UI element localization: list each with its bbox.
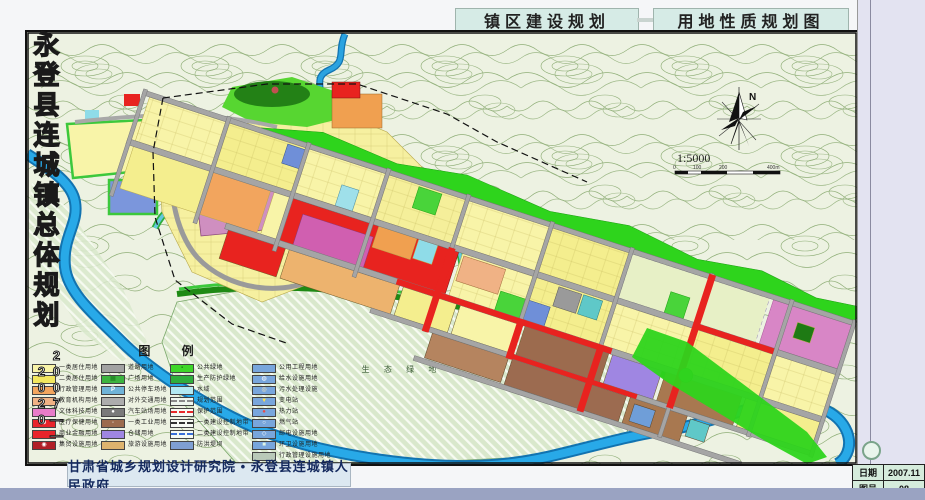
legend-item-label: 对外交通用地 <box>128 398 167 405</box>
legend-swatch: ○ <box>252 419 276 428</box>
legend-item: ◍给水设施用地 <box>252 375 331 383</box>
legend-item: 二类建设控制地带 <box>170 430 249 438</box>
forest-patch <box>234 81 310 107</box>
legend-swatch: ◦ <box>101 419 125 428</box>
svg-text:0: 0 <box>673 165 676 171</box>
legend-swatch: ● <box>101 408 125 417</box>
legend-item: P公共停车场地 <box>101 386 167 394</box>
sidebar-divider <box>870 0 871 488</box>
legend-swatch <box>170 408 194 417</box>
legend-item-label: 道路用地 <box>128 365 154 372</box>
bottom-strip <box>0 488 925 500</box>
legend-item-label: 汽车站场用地 <box>128 409 167 416</box>
legend-item: ●热力站 <box>252 408 331 416</box>
legend-swatch <box>170 441 194 450</box>
legend-swatch <box>101 441 125 450</box>
legend-item: ▼变电站 <box>252 397 331 405</box>
legend-item-label: 燃气站 <box>279 420 299 427</box>
legend-item-label: 保护范围 <box>197 409 223 416</box>
legend-item-label: 仓储用地 <box>128 431 154 438</box>
legend-item-label: 医疗保健用地 <box>59 420 98 427</box>
svg-text:100: 100 <box>693 165 702 171</box>
legend-item: ▦广场用地 <box>101 375 167 383</box>
legend-swatch: ◎ <box>252 386 276 395</box>
legend-swatch <box>170 375 194 384</box>
legend-item: ●汽车站场用地 <box>101 408 167 416</box>
legend-swatch: ▦ <box>101 375 125 384</box>
legend-swatch: ▪ <box>170 364 194 373</box>
legend-item: 公用工程用地 <box>252 364 331 372</box>
legend-item-label: 公用工程用地 <box>279 365 318 372</box>
legend-swatch <box>101 430 125 439</box>
legend-item-label: 生产防护绿地 <box>197 376 236 383</box>
svg-text:200: 200 <box>719 165 728 171</box>
legend-item-label: 给水设施用地 <box>279 376 318 383</box>
legend-item-label: 广场用地 <box>128 376 154 383</box>
legend-item: 一类建设控制地带 <box>170 419 249 427</box>
legend-item: ◇邮电设施用地 <box>252 430 331 438</box>
legend-columns: 一类居住用地二类居住用地行政管理用地教育机构用地文体科技用地⊕医疗保健用地商业金… <box>32 364 300 460</box>
legend-item-label: 一类居住用地 <box>59 365 98 372</box>
legend-swatch <box>170 430 194 439</box>
sidebar <box>857 0 925 488</box>
legend-item: 生产防护绿地 <box>170 375 249 383</box>
title-tab-landuse-plan: 用地性质规划图 <box>653 8 849 32</box>
legend-item-label: 教育机构用地 <box>59 398 98 405</box>
legend-swatch: ◍ <box>252 375 276 384</box>
legend-item: ◎污水处理设施 <box>252 386 331 394</box>
legend-item-label: 公共绿地 <box>197 365 223 372</box>
tab-connector-line <box>637 18 653 22</box>
legend-item-label: 防洪堤坝 <box>197 442 223 449</box>
legend-item: 规划范围 <box>170 397 249 405</box>
legend-swatch: P <box>101 386 125 395</box>
legend-item: 对外交通用地 <box>101 397 167 405</box>
legend-item-label: 一类建设控制地带 <box>197 420 249 427</box>
scale-ratio: 1:5000 <box>677 151 710 165</box>
north-label: N <box>749 92 756 103</box>
legend-item: 道路用地 <box>101 364 167 372</box>
legend-swatch: ◇ <box>252 430 276 439</box>
legend-item-label: 邮电设施用地 <box>279 431 318 438</box>
legend-item: 水域 <box>170 386 249 394</box>
date-value: 2007.11 <box>884 465 925 481</box>
stamp-circle-icon <box>862 441 881 460</box>
legend-item: 旅游设施用地 <box>101 441 167 449</box>
legend-item: ○燃气站 <box>252 419 331 427</box>
table-row: 日期 2007.11 <box>853 465 925 481</box>
legend-item: ▪公共绿地 <box>170 364 249 372</box>
legend-swatch <box>170 397 194 406</box>
legend-item-label: 一类工业用地 <box>128 420 167 427</box>
legend-title: 图 例 <box>32 342 300 359</box>
legend-item: 仓储用地 <box>101 430 167 438</box>
legend-item-label: 水域 <box>197 387 210 394</box>
legend-swatch <box>252 364 276 373</box>
legend-item-label: 文体科技用地 <box>59 409 98 416</box>
legend-item-label: 污水处理设施 <box>279 387 318 394</box>
date-label: 日期 <box>853 465 884 481</box>
legend-item-label: 规划范围 <box>197 398 223 405</box>
legend-item-label: 行政管理用地 <box>59 387 98 394</box>
legend-swatch: ● <box>252 408 276 417</box>
legend-swatch <box>101 397 125 406</box>
legend-item-label: 二类建设控制地带 <box>197 431 249 438</box>
legend-item-label: 热力站 <box>279 409 299 416</box>
svg-text:400m: 400m <box>767 165 780 171</box>
drawing-title-vertical: 永登县连城镇总体规划 <box>20 28 64 333</box>
legend-item-label: 旅游设施用地 <box>128 442 167 449</box>
legend-item-label: 环卫设施用地 <box>279 442 318 449</box>
legend-swatch <box>170 419 194 428</box>
legend-item-label: 公共停车场地 <box>128 387 167 394</box>
credits-bar: 甘肃省城乡规划设计研究院 • 永登县连城镇人民政府 <box>67 463 351 487</box>
title-tab-construction-plan: 镇区建设规划 <box>455 8 639 32</box>
legend-item-label: 商业金融用地 <box>59 431 98 438</box>
legend-item: 防洪堤坝 <box>170 441 249 449</box>
drawing-years-vertical: 2007——2020 <box>20 336 64 456</box>
legend-swatch <box>101 364 125 373</box>
legend-swatch: ▼ <box>252 397 276 406</box>
legend-item-label: 二类居住用地 <box>59 376 98 383</box>
legend-item: ■环卫设施用地 <box>252 441 331 449</box>
legend: 图 例 一类居住用地二类居住用地行政管理用地教育机构用地文体科技用地⊕医疗保健用… <box>32 342 300 460</box>
legend-swatch: ■ <box>252 441 276 450</box>
legend-item: 保护范围 <box>170 408 249 416</box>
legend-swatch <box>170 386 194 395</box>
legend-item-label: 集贸设施用地 <box>59 442 98 449</box>
legend-item-label: 变电站 <box>279 398 299 405</box>
legend-item: ◦一类工业用地 <box>101 419 167 427</box>
